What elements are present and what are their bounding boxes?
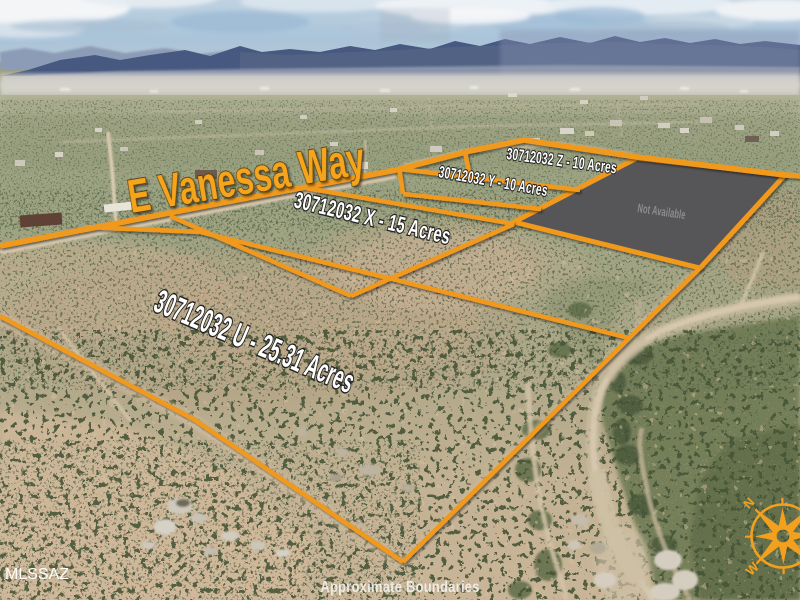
svg-text:Approximate Boundaries: Approximate Boundaries	[320, 579, 479, 597]
svg-text:MLSSAZ: MLSSAZ	[5, 566, 69, 583]
